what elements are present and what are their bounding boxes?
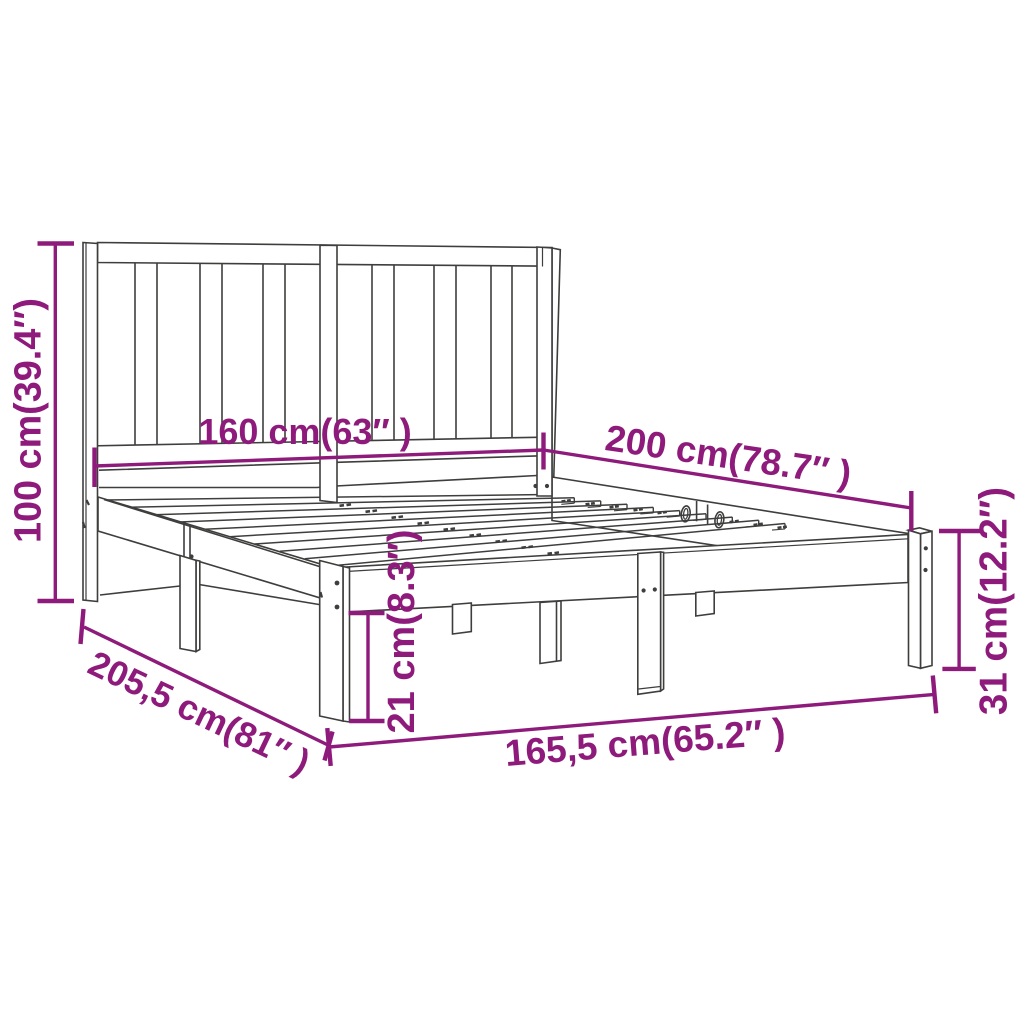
svg-text:160 cm(63″ ): 160 cm(63″ ) [198, 411, 411, 452]
svg-text:21 cm(8.3″): 21 cm(8.3″) [381, 529, 423, 733]
svg-text:100 cm(39.4″): 100 cm(39.4″) [8, 298, 50, 543]
svg-text:31 cm(12.2″): 31 cm(12.2″) [972, 487, 1015, 715]
